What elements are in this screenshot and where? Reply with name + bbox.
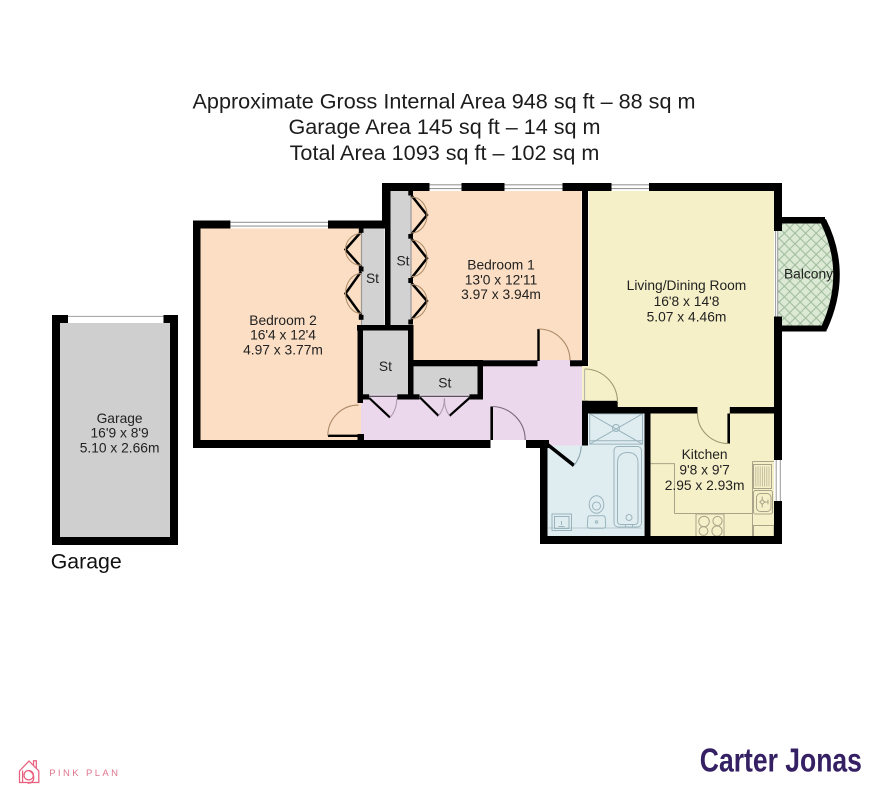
- svg-text:Garage Area 145 sq ft – 14 sq: Garage Area 145 sq ft – 14 sq m: [288, 114, 600, 139]
- svg-text:Garage: Garage: [97, 411, 143, 426]
- svg-text:16'9 x 8'9: 16'9 x 8'9: [90, 426, 149, 441]
- svg-text:13'0 x 12'11: 13'0 x 12'11: [465, 272, 538, 287]
- svg-text:St: St: [396, 253, 409, 268]
- svg-text:5.07 x 4.46m: 5.07 x 4.46m: [647, 309, 727, 324]
- svg-text:St: St: [379, 359, 392, 374]
- svg-text:Garage: Garage: [51, 550, 122, 574]
- svg-text:St: St: [438, 376, 451, 391]
- svg-text:Total Area 1093 sq ft – 102 sq: Total Area 1093 sq ft – 102 sq m: [290, 140, 600, 165]
- svg-text:Carter Jonas: Carter Jonas: [700, 743, 862, 780]
- svg-text:3.97 x 3.94m: 3.97 x 3.94m: [461, 287, 541, 302]
- svg-text:4.97 x 3.77m: 4.97 x 3.77m: [243, 342, 323, 357]
- svg-text:Kitchen: Kitchen: [682, 447, 728, 462]
- svg-text:16'8 x 14'8: 16'8 x 14'8: [654, 294, 720, 309]
- svg-text:16'4 x 12'4: 16'4 x 12'4: [250, 328, 316, 343]
- svg-text:PINK PLAN: PINK PLAN: [49, 768, 120, 779]
- svg-text:Bedroom 1: Bedroom 1: [467, 258, 535, 273]
- svg-text:Living/Dining Room: Living/Dining Room: [627, 278, 747, 293]
- svg-text:St: St: [366, 271, 379, 286]
- svg-text:Balcony: Balcony: [784, 267, 833, 282]
- svg-text:Approximate Gross Internal Are: Approximate Gross Internal Area 948 sq f…: [193, 89, 696, 114]
- svg-text:5.10 x 2.66m: 5.10 x 2.66m: [80, 440, 160, 455]
- svg-text:2.95 x 2.93m: 2.95 x 2.93m: [665, 478, 745, 493]
- svg-text:Bedroom 2: Bedroom 2: [249, 313, 317, 328]
- svg-text:9'8 x 9'7: 9'8 x 9'7: [679, 462, 730, 477]
